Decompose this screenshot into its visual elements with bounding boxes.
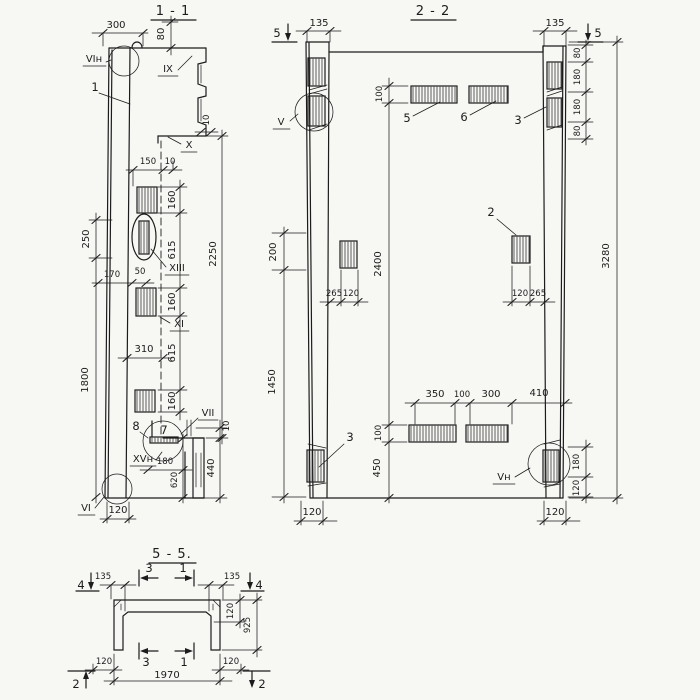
dim-170-label: 170 [104,270,120,280]
dim-1450-label: 1450 [267,369,278,394]
hatch-lines [310,97,322,125]
cut-4-label: 4 [77,578,84,592]
section-2-2-title: 2 - 2 [416,4,451,19]
dim-chain-left: 200 1450 [267,227,306,503]
dim-120-slab: 120 [214,594,262,628]
dim-200-label: 200 [268,242,279,261]
dim-160-label: 160 [167,292,178,311]
labels-1-1: VIн 1 IX X XIII XI 8 7 VII XVн VI [78,54,218,515]
dim-10-label: 10 [222,421,232,432]
dim-615-label: 615 [167,240,178,259]
dim-150-10: 150 10 [126,157,182,186]
dim-chain-bottom-right: 180 120 [568,440,593,503]
hatch-lines [309,451,321,481]
hatch-lines [411,426,453,441]
dim-3280-label: 3280 [601,243,612,268]
cut-mark-2-left: 2 [68,671,95,691]
section-2-2: 2 - 2 5 [267,4,623,525]
hatch-lines [468,426,507,441]
dim-160-label: 160 [167,391,178,410]
dim-120-col-left: 120 [294,501,337,525]
dim-2250: 2250 [206,130,228,444]
bottom-rib [193,438,204,498]
dim-135-left: 135 [296,18,341,42]
plate-bottom [466,425,508,442]
label-XI: XI [174,319,184,330]
dim-80: 80 [156,16,178,55]
hatch-lines [471,87,507,102]
rib-outline [105,42,206,498]
hatch-lines [545,451,557,481]
dim-chain-top-right: 80 180 180 80 [568,40,593,145]
detail-callout-circle [295,93,333,131]
plate-bottom [409,425,456,442]
cut-3-label: 3 [142,655,149,669]
dim-450-label: 450 [372,458,383,477]
lifting-loop [132,42,142,48]
dim-615-label: 615 [167,343,178,362]
dim-180-label: 180 [572,454,582,470]
dim-10-label: 10 [202,115,212,126]
dim-chain-right: 160 615 160 615 160 [158,180,187,420]
dim-135-label: 135 [95,572,111,582]
hatch-lines [139,188,154,212]
panel-outline [306,42,566,498]
dim-410-label: 410 [529,388,548,399]
label-pos-6: 6 [460,110,467,124]
dim-925-label: 925 [243,617,253,633]
dim-10-label: 10 [165,157,176,167]
dim-300-label: 300 [106,20,125,31]
cut-mark-5-left: 5 [272,24,297,42]
dim-120-label: 120 [226,603,236,619]
detail-callout-circle [109,46,139,76]
cut-5-label: 5 [594,26,601,40]
cut-mark-1-top: 1 [175,561,194,586]
dim-120-label: 120 [96,657,112,667]
dim-925: 925 [222,593,262,657]
dim-120-label: 120 [572,480,582,496]
label-pos-7: 7 [160,423,167,437]
dim-120-label: 120 [343,289,359,299]
cut-mark-3-bottom: 3 [139,643,158,669]
label-pos-8: 8 [132,419,139,433]
dim-80-label: 80 [156,28,167,41]
dim-440-label: 440 [206,458,217,477]
plate-item-2 [512,236,530,263]
dim-chain-center: 100 2400 100 450 [372,78,408,503]
hatch-lines [549,63,561,88]
section-5-5: 5 - 5. 4 4 3 1 3 1 [68,547,270,691]
dim-180-620: 180 620 [140,434,192,503]
dim-135-label: 135 [224,572,240,582]
dim-300-label: 300 [481,389,500,400]
section-5-5-title: 5 - 5. [152,547,192,562]
column-plate [308,96,325,126]
section-1-1: 1 - 1 300 [78,4,232,523]
dim-2400-label: 2400 [373,251,384,276]
cut-2-label: 2 [72,677,79,691]
dim-120-label: 120 [223,657,239,667]
dim-120-label: 120 [545,507,564,518]
dim-120-label: 120 [512,289,528,299]
cut-mark-3-top: 3 [139,561,158,586]
dim-80-label: 80 [573,48,583,59]
dim-120-bottom-left: 120 [85,657,122,674]
dim-bottom-row: 350 100 300 410 [405,388,572,424]
dim-2250-label: 2250 [208,241,219,266]
hatch-lines [342,242,354,267]
dim-120-265-right: 120 265 [503,266,555,306]
hatch-lines [141,222,147,253]
dim-180-label: 180 [573,69,583,85]
dim-100-label: 100 [374,425,384,441]
dim-250-label: 250 [81,229,92,248]
plate-left-mid [340,241,357,268]
label-pos-3: 3 [346,430,353,444]
hatch-lines [549,99,561,126]
cut-mark-2-right: 2 [243,671,270,691]
dim-50-label: 50 [135,267,146,277]
label-pos-1: 1 [91,80,98,94]
hatch-lines [137,391,152,411]
dim-350-label: 350 [425,389,444,400]
channel-profile [114,600,220,650]
cut-1-label: 1 [180,655,187,669]
cut-1-label: 1 [179,561,186,575]
dim-170-50: 170 50 [92,267,154,287]
dim-120-label: 120 [108,505,127,516]
dim-100-label: 100 [454,390,470,400]
cut-5-label: 5 [273,26,280,40]
dim-120-bottom: 120 [100,502,136,523]
section-1-1-title: 1 - 1 [156,4,191,19]
dim-120-col-right: 120 [537,501,580,525]
dim-265-120-left: 265 120 [320,270,368,306]
label-IX: IX [163,64,173,75]
hatch-lines [514,237,529,262]
dim-620-label: 620 [170,472,180,488]
dim-1970-label: 1970 [154,670,179,681]
cut-mark-5-right: 5 [578,24,603,42]
hatch-lines [310,59,322,85]
label-pos-2: 2 [487,205,494,219]
dim-310: 310 [118,344,172,362]
dim-180-label: 180 [573,99,583,115]
dim-120-label: 120 [302,507,321,518]
label-Vn: Vн [497,472,510,483]
dim-180-label: 180 [157,457,173,467]
label-X: X [186,140,193,151]
label-pos-5: 5 [403,111,410,125]
drawing-sheet: 1 - 1 300 [0,0,700,700]
dim-135-label: 135 [309,18,328,29]
label-VI: VI [81,503,91,514]
label-VIn: VIн [86,54,102,65]
cut-2-label: 2 [258,677,265,691]
dim-1800-label: 1800 [80,367,91,392]
label-pos-3: 3 [514,113,521,127]
dim-100-label: 100 [375,86,385,102]
detail-callout-circle [102,474,132,504]
label-VII: VII [202,408,215,419]
plate-item-6 [469,86,508,103]
cut-4-label: 4 [255,578,262,592]
dim-265-label: 265 [326,289,342,299]
cut-mark-4-right: 4 [241,573,264,592]
dim-135-label: 135 [545,18,564,29]
hatch-lines [138,289,153,315]
hatch-lines [413,87,455,102]
dim-310-label: 310 [134,344,153,355]
dim-150-label: 150 [140,157,156,167]
cut-mark-1-bottom: 1 [175,643,194,669]
label-XIII: XIII [169,263,185,274]
dim-265-label: 265 [530,289,546,299]
dim-80-label: 80 [573,126,583,137]
technical-drawing-canvas: 1 - 1 300 [0,0,700,700]
column-plate [308,58,325,86]
dim-440-10: 10 440 [196,420,232,503]
dim-1970: 1970 [104,654,232,685]
label-XVn: XVн [133,454,153,465]
cut-3-label: 3 [145,561,152,575]
label-V: V [278,117,285,128]
dim-160-label: 160 [167,190,178,209]
